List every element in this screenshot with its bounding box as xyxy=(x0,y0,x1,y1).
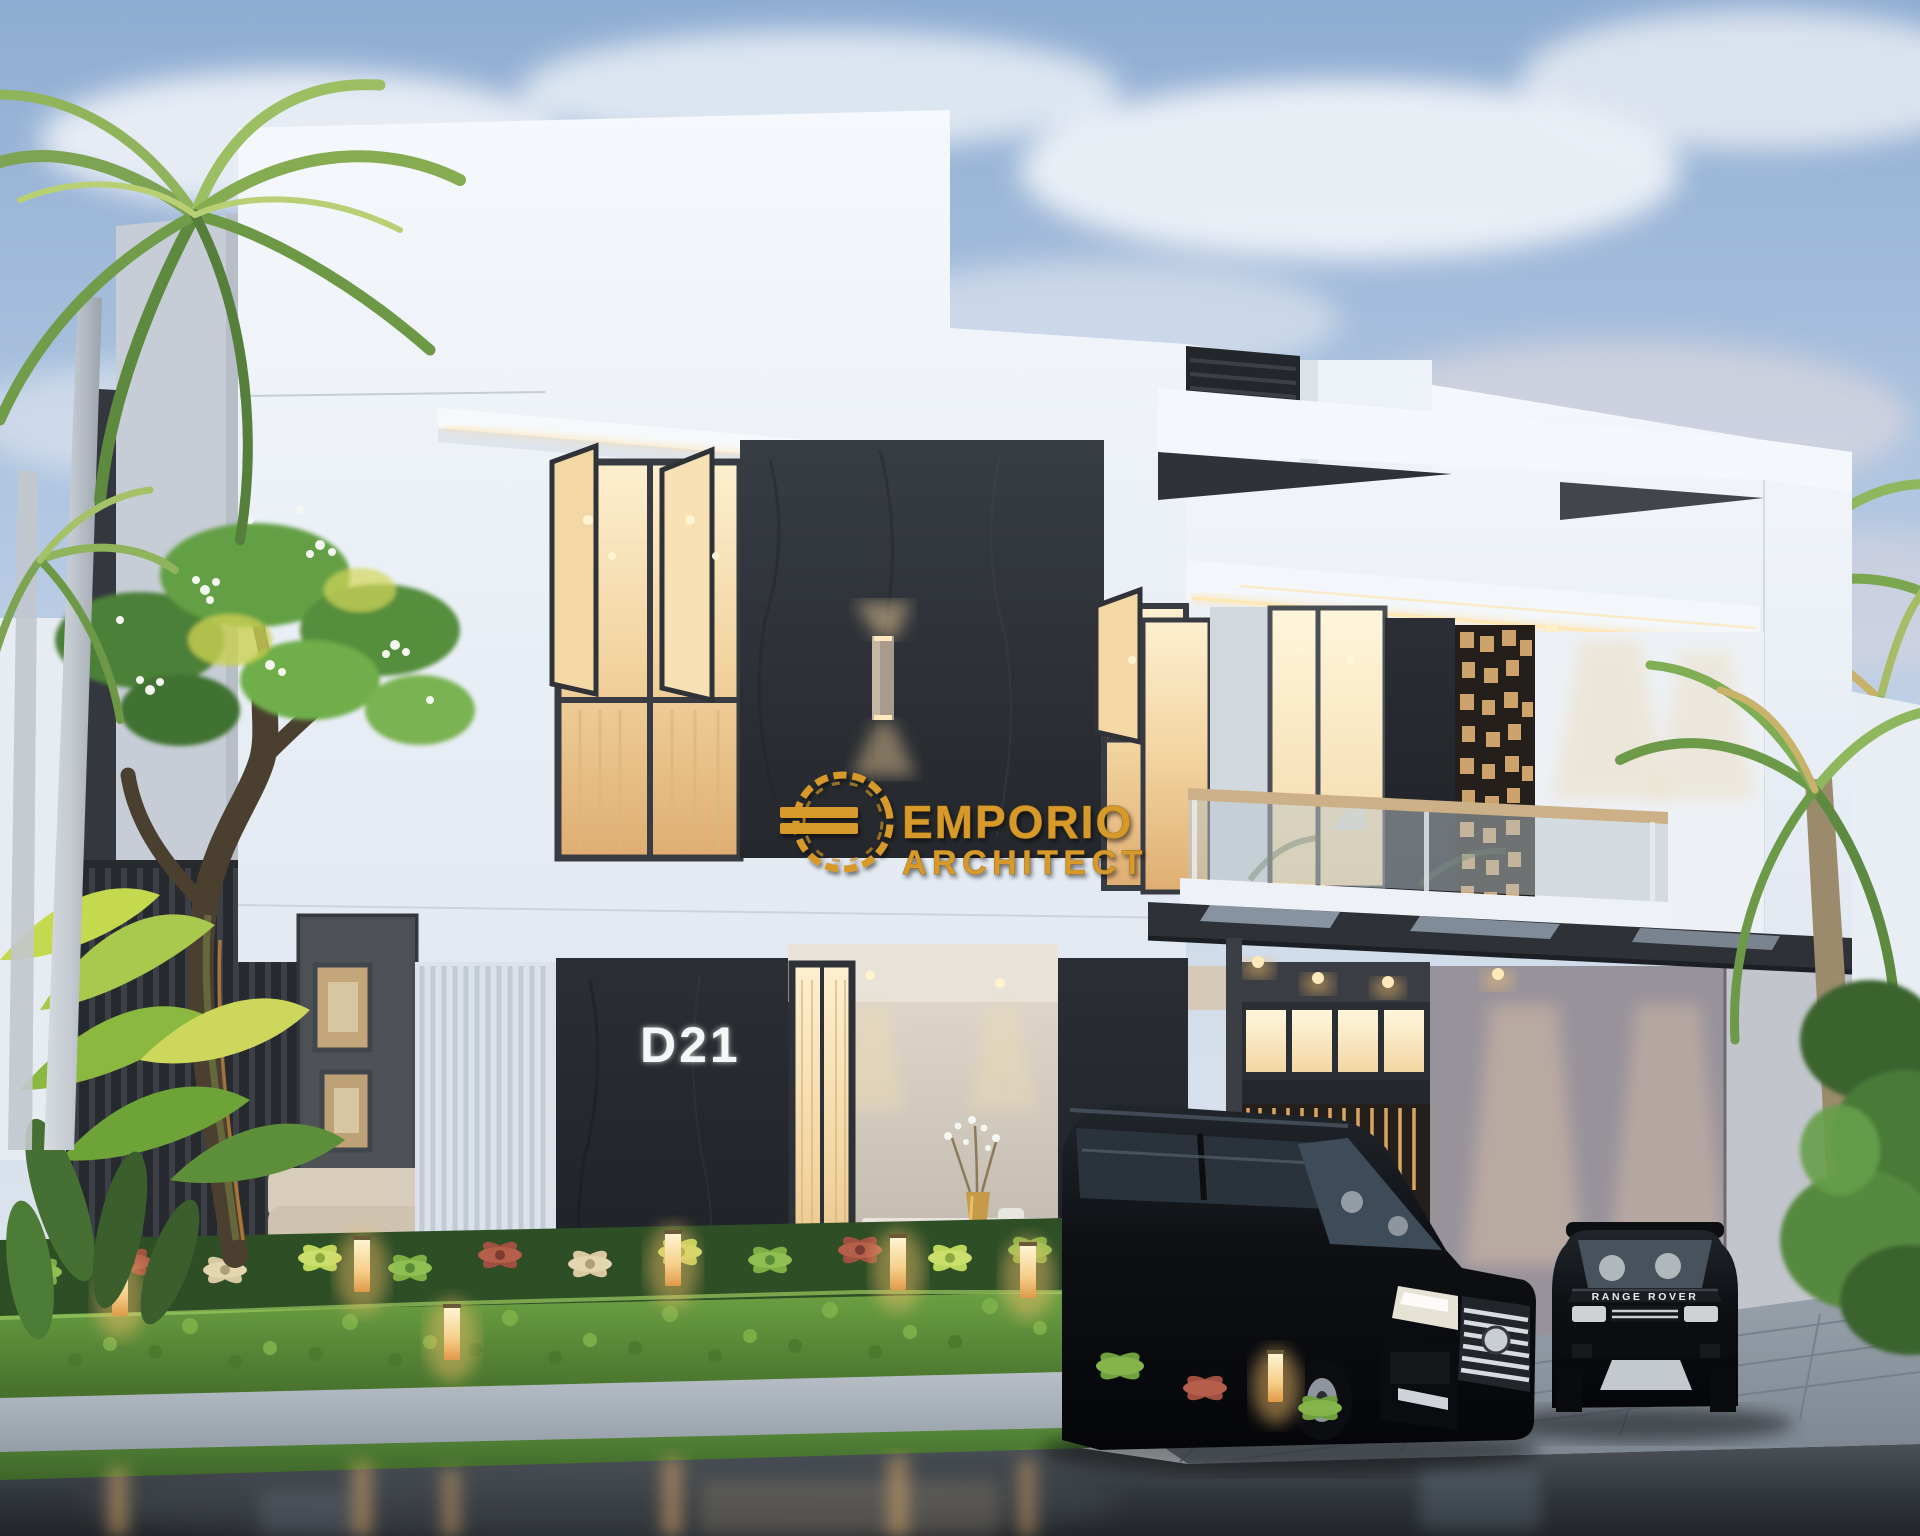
bollard-light xyxy=(647,1224,699,1308)
bollard-light xyxy=(1002,1236,1054,1320)
second-floor-right xyxy=(1143,560,1764,946)
brand-subtitle: ARCHITECT xyxy=(902,844,1148,882)
house-number: D21 xyxy=(640,1017,741,1073)
open-window-sash xyxy=(662,450,712,700)
interior-seat xyxy=(1655,1253,1681,1279)
brand-badge xyxy=(1483,1327,1509,1353)
skid-plate xyxy=(1600,1360,1692,1390)
bollard-light xyxy=(872,1228,924,1312)
bollard-light xyxy=(426,1298,478,1382)
terrace-window xyxy=(300,917,415,1205)
headlight xyxy=(1572,1306,1606,1322)
headlight xyxy=(1684,1306,1718,1322)
architectural-render: D21 xyxy=(0,0,1920,1536)
wheel xyxy=(1710,1368,1736,1412)
bollard-light xyxy=(336,1230,388,1314)
grille xyxy=(1610,1306,1680,1324)
bollard-light xyxy=(1252,1348,1300,1424)
range-rover-badge: RANGE ROVER xyxy=(1592,1291,1699,1303)
carport-column xyxy=(1226,938,1242,1138)
windshield xyxy=(1578,1240,1712,1288)
render-canvas: D21 xyxy=(0,0,1920,1536)
casement-windows-upper-left xyxy=(552,446,740,858)
interior-seat xyxy=(1599,1255,1625,1281)
wheel xyxy=(1556,1368,1582,1412)
brand-name: EMPORIO xyxy=(902,796,1133,848)
grille xyxy=(1458,1296,1530,1392)
open-window-sash xyxy=(552,446,596,694)
